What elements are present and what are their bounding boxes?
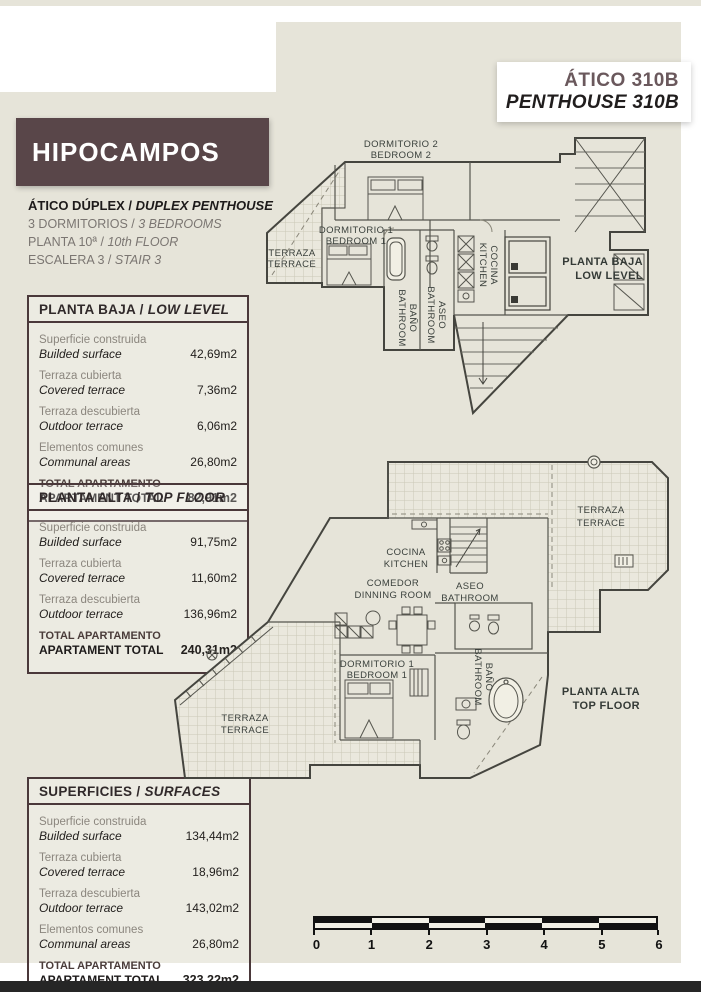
toilet-icon — [457, 720, 470, 739]
brand-banner: HIPOCAMPOS — [16, 118, 269, 186]
stove-icon — [438, 539, 451, 565]
door-arc — [384, 220, 492, 238]
room-label-terraza-lower-es: TERRAZA — [221, 713, 268, 724]
brand-name: HIPOCAMPOS — [16, 137, 220, 168]
room-label-cocina-es: COCINA — [488, 245, 499, 285]
room-label-aseo-en: BATHROOM — [425, 286, 436, 343]
sink-icon — [426, 236, 438, 251]
scale-number: 0 — [313, 937, 320, 952]
info-line-bedrooms: 3 DORMITORIOS / 3 BEDROOMS — [28, 215, 278, 233]
table-row: Terraza descubiertaOutdoor terrace143,02… — [39, 887, 239, 916]
room-label-aseo-es: ASEO — [456, 581, 484, 592]
room-label-dormitorio2-en: BEDROOM 2 — [371, 150, 432, 161]
room-label-dormitorio1-es: DORMITORIO 1 — [319, 225, 393, 236]
info-line-stair: ESCALERA 3 / STAIR 3 — [28, 251, 278, 269]
kitchen-counter-icon — [412, 520, 437, 529]
room-label-terraza-en: TERRACE — [268, 259, 316, 270]
scale-bar-graphic — [313, 916, 658, 930]
plan-title-planta-alta: PLANTA ALTA — [562, 686, 640, 698]
table-row: Terraza cubiertaCovered terrace18,96m2 — [39, 851, 239, 880]
kitchen-counter-icon — [458, 236, 474, 302]
room-label-bano-en: BATHROOM — [472, 648, 483, 705]
room-label-aseo-es: ASEO — [436, 301, 447, 329]
room-label-dormitorio1-es: DORMITORIO 1 — [340, 659, 414, 670]
scale-number: 5 — [598, 937, 605, 952]
footer-bar — [0, 981, 701, 992]
table-row: Superficie construidaBuilded surface134,… — [39, 815, 239, 844]
elevator-icon — [505, 237, 550, 310]
room-label-bano-es: BAÑO — [483, 663, 494, 692]
terrace-tiles — [175, 622, 420, 778]
top-left-white-block — [0, 22, 276, 92]
plan-title-low-level: LOW LEVEL — [575, 270, 643, 282]
surface-table-total: SUPERFICIES / SURFACES Superficie constr… — [27, 777, 251, 992]
side-table-icon — [366, 611, 380, 625]
toilet-icon — [426, 256, 438, 274]
scale-number: 4 — [541, 937, 548, 952]
room-label-dormitorio1-en: BEDROOM 1 — [326, 236, 387, 247]
wardrobe-icon — [410, 669, 428, 696]
bed-icon — [345, 680, 393, 738]
bed-icon — [368, 177, 423, 220]
scale-number: 2 — [426, 937, 433, 952]
brochure-page: ÁTICO 310B PENTHOUSE 310B HIPOCAMPOS ÁTI… — [0, 0, 701, 992]
room-label-dormitorio2-es: DORMITORIO 2 — [364, 139, 438, 150]
info-line-type: ÁTICO DÚPLEX / DUPLEX PENTHOUSE — [28, 197, 278, 215]
room-label-cocina-en: KITCHEN — [477, 243, 488, 288]
sink-icon — [470, 615, 480, 631]
ac-vent-icon — [615, 555, 633, 567]
room-label-bano-en: BATHROOM — [396, 289, 407, 346]
aseo-room — [455, 603, 532, 649]
unit-title-es: ÁTICO 310B — [497, 70, 679, 92]
scale-number: 6 — [655, 937, 662, 952]
chimney-icon — [588, 456, 600, 468]
plan-title-top-floor: TOP FLOOR — [573, 700, 640, 712]
room-label-aseo-en: BATHROOM — [441, 593, 498, 604]
table-row: Superficie construidaBuilded surface42,6… — [39, 333, 237, 362]
top-floor-floorplan: TERRAZA TERRACE COCINA KITCHEN COMEDOR D… — [170, 455, 682, 785]
room-label-bano-es: BAÑO — [407, 304, 418, 333]
table-row: Elementos comunesCommunal areas26,80m2 — [39, 923, 239, 952]
unit-info-block: ÁTICO DÚPLEX / DUPLEX PENTHOUSE 3 DORMIT… — [28, 197, 278, 269]
toilet-icon — [488, 615, 499, 634]
table-row: Terraza cubiertaCovered terrace7,36m2 — [39, 369, 237, 398]
room-label-terraza-es: TERRAZA — [268, 248, 315, 259]
bathtub-icon — [387, 238, 405, 280]
room-label-terraza-lower-en: TERRACE — [221, 725, 269, 736]
info-line-floor: PLANTA 10ª / 10th FLOOR — [28, 233, 278, 251]
scale-number: 1 — [368, 937, 375, 952]
room-label-comedor-es: COMEDOR — [367, 578, 419, 589]
table-header: PLANTA BAJA / LOW LEVEL — [29, 297, 247, 323]
unit-title-box: ÁTICO 310B PENTHOUSE 310B — [497, 62, 691, 122]
bed-icon — [327, 244, 371, 285]
stairs-icon — [450, 527, 487, 567]
unit-title-en: PENTHOUSE 310B — [497, 92, 679, 114]
low-level-floorplan: DORMITORIO 2 BEDROOM 2 DORMITORIO 1 BEDR… — [258, 132, 650, 444]
dining-table-icon — [389, 607, 435, 653]
terrace-tiles — [388, 462, 668, 632]
table-row: Terraza descubiertaOutdoor terrace6,06m2 — [39, 405, 237, 434]
room-label-comedor-en: DINNING ROOM — [354, 590, 431, 601]
room-label-dormitorio1-en: BEDROOM 1 — [347, 670, 408, 681]
top-white-margin — [0, 6, 701, 22]
scale-bar: 0 1 2 3 4 5 6 — [313, 916, 659, 956]
scale-number: 3 — [483, 937, 490, 952]
stairs-icon — [575, 138, 645, 232]
sofa-icon — [335, 611, 380, 638]
plan-title-planta-baja: PLANTA BAJA — [562, 256, 643, 268]
room-label-terraza-upper-en: TERRACE — [577, 518, 625, 529]
room-label-terraza-upper-es: TERRAZA — [577, 505, 624, 516]
room-label-cocina-es: COCINA — [386, 547, 426, 558]
room-label-cocina-en: KITCHEN — [384, 559, 429, 570]
